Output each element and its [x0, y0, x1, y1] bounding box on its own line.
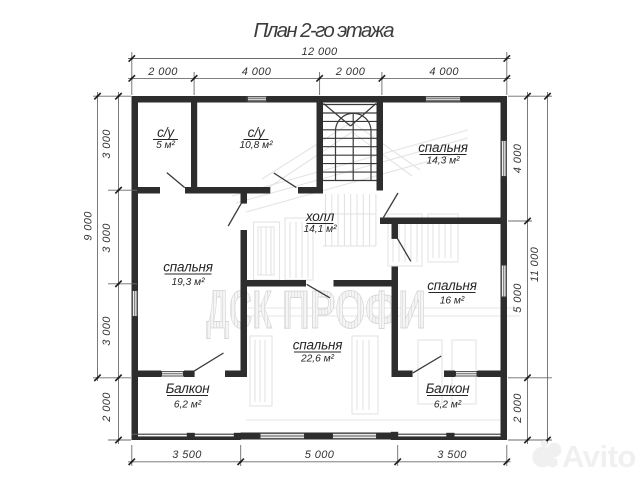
svg-text:19,3 м²: 19,3 м² — [171, 277, 205, 288]
svg-text:6,2 м²: 6,2 м² — [174, 400, 202, 411]
svg-text:ДСК: ДСК — [206, 280, 273, 340]
svg-text:12 000: 12 000 — [301, 46, 338, 58]
svg-text:2 000: 2 000 — [101, 392, 113, 423]
svg-text:План 2-го этажа: План 2-го этажа — [254, 19, 395, 42]
svg-text:холл: холл — [305, 209, 335, 224]
svg-text:Балкон: Балкон — [166, 381, 211, 396]
svg-text:5 м²: 5 м² — [156, 140, 175, 151]
svg-text:3 000: 3 000 — [101, 129, 113, 159]
svg-text:с/у: с/у — [157, 125, 175, 140]
svg-text:спальня: спальня — [418, 140, 468, 155]
svg-text:14,3 м²: 14,3 м² — [426, 156, 460, 167]
svg-text:4 000: 4 000 — [429, 66, 459, 78]
svg-text:2 000: 2 000 — [147, 66, 178, 78]
svg-text:3 500: 3 500 — [172, 449, 202, 461]
svg-text:5 000: 5 000 — [305, 449, 335, 461]
svg-text:4 000: 4 000 — [512, 143, 524, 173]
svg-text:спальня: спальня — [427, 278, 477, 293]
svg-text:2 000: 2 000 — [512, 393, 524, 424]
svg-text:10,8 м²: 10,8 м² — [239, 140, 273, 151]
svg-text:4 000: 4 000 — [242, 66, 272, 78]
svg-text:с/у: с/у — [248, 125, 266, 140]
svg-text:спальня: спальня — [163, 260, 213, 275]
svg-text:22,6 м²: 22,6 м² — [300, 354, 335, 365]
svg-text:5 000: 5 000 — [512, 283, 524, 313]
svg-text:16 м²: 16 м² — [440, 296, 465, 307]
svg-text:3 500: 3 500 — [437, 449, 467, 461]
svg-text:6,2 м²: 6,2 м² — [434, 400, 462, 411]
svg-text:3 000: 3 000 — [101, 223, 113, 253]
svg-text:11 000: 11 000 — [529, 246, 541, 282]
svg-text:Балкон: Балкон — [426, 381, 471, 396]
svg-text:14,1 м²: 14,1 м² — [303, 224, 337, 235]
svg-text:Avito: Avito — [562, 439, 636, 474]
svg-text:9 000: 9 000 — [83, 211, 95, 241]
svg-text:ПРОФИ: ПРОФИ — [282, 280, 426, 340]
svg-text:2 000: 2 000 — [335, 66, 366, 78]
svg-text:спальня: спальня — [293, 338, 343, 353]
svg-text:3 000: 3 000 — [101, 316, 113, 346]
